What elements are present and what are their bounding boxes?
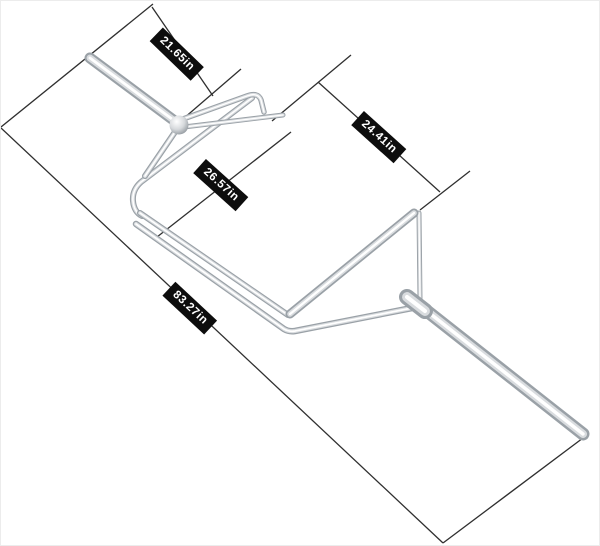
bar-illustration: [1, 1, 600, 546]
front-rail-upper-tube-layer: [140, 213, 288, 315]
product-dimension-diagram: 21.65in 24.41in 26.57in 83.27in: [0, 0, 600, 546]
bar-tubes: [90, 58, 583, 434]
extension-line-right-sleeve: [443, 435, 587, 543]
left-handle-grip-tube: [184, 115, 283, 127]
front-rail-upper-tube: [140, 213, 288, 315]
right-handle-post-tube: [419, 213, 420, 299]
left-sleeve-tube: [90, 58, 176, 122]
right-junction-collar: [407, 297, 425, 311]
right-sleeve-tube-layer: [418, 304, 583, 434]
extension-line-right-handle: [420, 171, 470, 210]
left-handle-grip-tube-layer: [184, 115, 283, 127]
right-sleeve-tube: [418, 304, 583, 434]
extension-line-left-sleeve-outer: [1, 4, 153, 127]
extension-line-left-handle: [272, 55, 351, 121]
left-junction-ball: [170, 116, 189, 135]
dimension-lines: [1, 4, 587, 543]
right-handle-grip-tube: [290, 213, 414, 314]
right-handle-grip-tube-layer: [290, 213, 414, 314]
left-sleeve-tube-layer: [90, 58, 176, 122]
